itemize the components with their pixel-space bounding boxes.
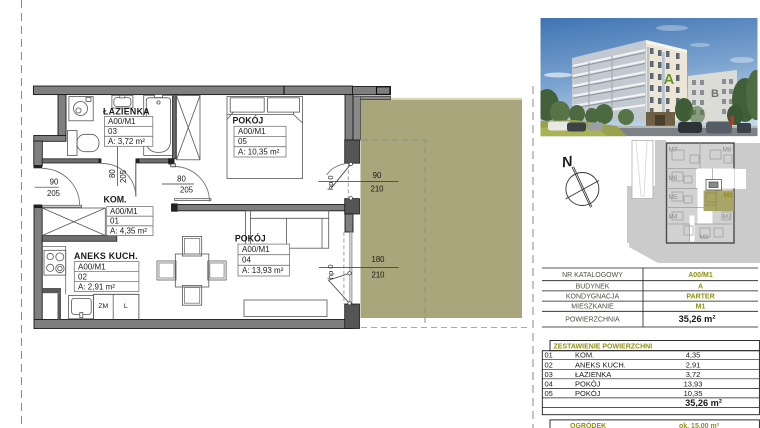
svg-text:ANEKS KUCH.: ANEKS KUCH. [74, 251, 138, 261]
svg-text:A: A [664, 71, 675, 88]
svg-text:205: 205 [119, 169, 128, 183]
svg-text:M7: M7 [669, 147, 678, 154]
svg-text:A: 10,35 m²: A: 10,35 m² [238, 147, 280, 156]
svg-text:M4: M4 [669, 213, 678, 220]
svg-text:POKÓJ: POKÓJ [575, 379, 601, 388]
svg-text:90: 90 [373, 171, 382, 180]
svg-text:NR KATALOGOWY: NR KATALOGOWY [562, 272, 623, 279]
svg-text:A: 3,72 m²: A: 3,72 m² [108, 137, 145, 146]
svg-text:210: 210 [371, 270, 385, 279]
svg-text:2,91: 2,91 [686, 360, 701, 369]
svg-text:205: 205 [47, 189, 61, 198]
svg-text:ANEKS KUCH.: ANEKS KUCH. [575, 360, 626, 369]
svg-text:A00/M1: A00/M1 [110, 207, 138, 216]
svg-text:BUDYNEK: BUDYNEK [576, 283, 610, 290]
svg-text:POKÓJ: POKÓJ [235, 233, 266, 244]
svg-text:A00/M1: A00/M1 [242, 245, 270, 254]
svg-text:L: L [124, 303, 128, 310]
svg-text:KONDYGNACJA: KONDYGNACJA [566, 294, 620, 301]
svg-text:ŁAZIENKA: ŁAZIENKA [575, 370, 611, 379]
svg-text:A: 13,93 m²: A: 13,93 m² [242, 266, 284, 275]
svg-text:M3: M3 [700, 234, 709, 241]
svg-text:80: 80 [177, 175, 186, 184]
svg-text:M2: M2 [723, 213, 732, 220]
svg-text:01: 01 [110, 217, 119, 226]
svg-text:4,35: 4,35 [686, 351, 701, 360]
svg-text:04: 04 [242, 256, 251, 265]
svg-text:KOM.: KOM. [104, 195, 127, 205]
svg-text:35,26 m²: 35,26 m² [685, 398, 722, 408]
svg-text:A00/M1: A00/M1 [78, 262, 106, 271]
svg-text:ZM: ZM [98, 303, 108, 310]
svg-text:hp 0: hp 0 [326, 264, 335, 279]
svg-text:ok. 15,00 m²: ok. 15,00 m² [679, 423, 720, 428]
svg-text:205: 205 [180, 185, 194, 194]
svg-text:POKÓJ: POKÓJ [575, 389, 601, 398]
svg-text:03: 03 [108, 127, 117, 136]
svg-text:10,35: 10,35 [684, 389, 703, 398]
svg-text:POWIERZCHNIA: POWIERZCHNIA [565, 317, 620, 324]
svg-text:B: B [711, 88, 719, 100]
svg-text:KOM.: KOM. [575, 351, 594, 360]
svg-text:02: 02 [545, 360, 553, 369]
svg-text:35,26 m²: 35,26 m² [679, 314, 716, 324]
svg-text:A: 4,35 m²: A: 4,35 m² [110, 226, 147, 235]
svg-text:hp 0: hp 0 [326, 175, 335, 190]
svg-text:M8: M8 [723, 147, 732, 154]
svg-text:A00/M1: A00/M1 [238, 127, 266, 136]
svg-text:01: 01 [545, 351, 553, 360]
svg-text:13,93: 13,93 [684, 379, 703, 388]
svg-text:210: 210 [370, 184, 384, 193]
svg-text:A00/M1: A00/M1 [108, 117, 136, 126]
svg-text:MIESZKANIE: MIESZKANIE [571, 304, 614, 311]
svg-text:M1: M1 [696, 304, 706, 311]
svg-text:M6: M6 [669, 175, 678, 182]
svg-text:3,72: 3,72 [686, 370, 701, 379]
svg-text:A: A [698, 283, 703, 290]
svg-text:N: N [561, 154, 575, 172]
svg-text:05: 05 [238, 137, 247, 146]
svg-text:M1: M1 [724, 192, 734, 199]
svg-text:ŁAZIENKA: ŁAZIENKA [103, 107, 150, 117]
svg-text:03: 03 [545, 370, 553, 379]
svg-text:05: 05 [545, 389, 553, 398]
svg-text:90: 90 [50, 178, 59, 187]
svg-text:A00/M1: A00/M1 [688, 272, 713, 279]
svg-text:180: 180 [371, 255, 385, 264]
svg-text:ZESTAWIENIE POWIERZCHNI: ZESTAWIENIE POWIERZCHNI [554, 343, 653, 350]
svg-text:PARTER: PARTER [686, 294, 714, 301]
svg-text:80: 80 [108, 169, 117, 178]
svg-text:OGRÓDEK: OGRÓDEK [570, 421, 606, 428]
svg-text:02: 02 [78, 272, 87, 281]
svg-text:A: 2,91 m²: A: 2,91 m² [78, 282, 115, 291]
svg-text:M5: M5 [669, 194, 678, 201]
svg-text:04: 04 [545, 379, 553, 388]
svg-text:POKÓJ: POKÓJ [233, 115, 264, 126]
